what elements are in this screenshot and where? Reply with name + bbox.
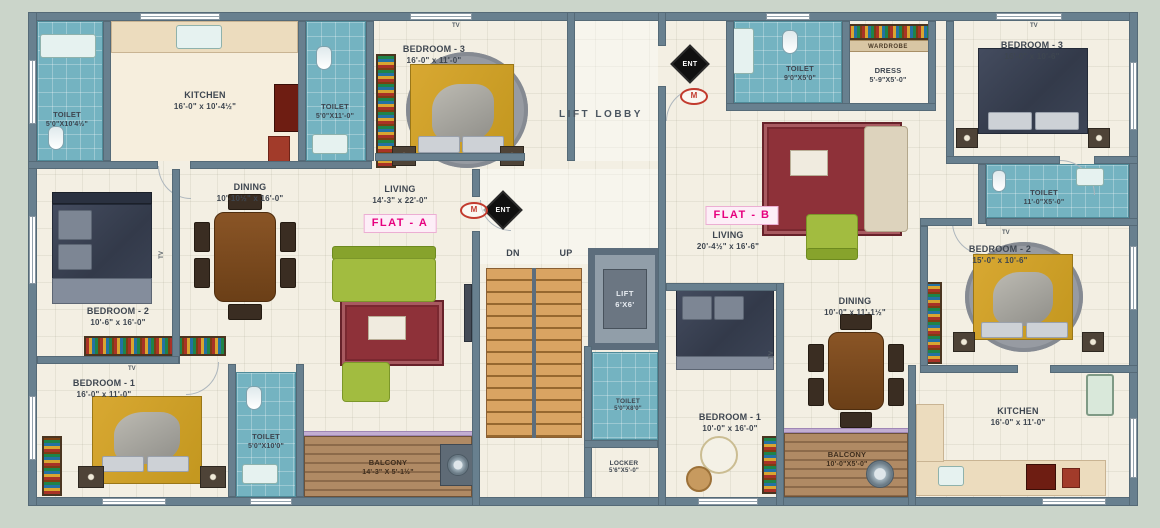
room-name: LIVING [697,230,759,242]
wall [172,169,180,364]
dining-b-chair [888,378,904,406]
wall [28,161,158,169]
wall [920,218,972,226]
dining-a-chair [228,304,262,320]
kitchen-b-mat [1062,468,1080,488]
wall [103,21,111,161]
wall [37,356,179,364]
bed2-a-sheet [52,278,152,304]
room-dims: 15'-0" x 10'-6" [969,256,1031,266]
living-a-sofa [332,258,436,302]
room-label-living-b: LIVING20'-4½" x 16'-6" [697,230,759,252]
room-label-balcony-b: BALCONY10'-0"X5'-0" [826,450,867,469]
wall [228,364,236,497]
lobby-floor-upper [575,21,658,161]
room-label-bed1-b: BEDROOM - 110'-0" x 16'-0" [699,412,761,434]
tv-label: TV [1002,230,1010,236]
room-label-dress: DRESS5'-9"X5'-0" [869,66,906,85]
room-label-bed1-a: BEDROOM - 116'-0" x 11'-0" [73,378,135,400]
dining-a-chair [280,258,296,288]
wardrobe-label-band: WARDROBE [846,40,930,52]
bed2-a-pillow [58,244,92,270]
window [1130,418,1137,478]
bed2-b-blanket [993,272,1053,326]
kitchen-b-counter-left [916,404,944,462]
toilet-a2-basin [312,134,348,154]
bed2-a-wardrobe-shelf [84,336,226,356]
balcony-a-washer-door [447,454,469,476]
room-label-bed2-a: BEDROOM - 210'-6" x 16'-0" [87,306,149,328]
room-name: DINING [217,182,284,194]
room-name: TOILET [1024,188,1065,198]
window [698,498,758,505]
wall [375,153,525,161]
room-name: BEDROOM - 2 [969,244,1031,256]
room-label-locker: LOCKER5'6"X5'-0" [609,460,639,476]
dining-a-chair [194,222,210,252]
room-label-bed2-b: BEDROOM - 215'-0" x 10'-6" [969,244,1031,266]
room-name: TOILET [248,432,284,442]
wall [908,365,916,506]
room-name: BALCONY [362,458,414,468]
toilet-b2-wc [992,170,1006,192]
room-dims: 14'-3" X 5'-1½" [362,468,414,477]
wall [946,21,954,162]
room-dims: 20'-4½" x 16'-6" [697,242,759,252]
room-dims: 14'-3" x 22'-0" [372,196,427,206]
room-name: KITCHEN [991,406,1046,418]
room-name: BEDROOM - 1 [73,378,135,390]
wall [920,226,928,373]
tv-label: TV [128,366,136,372]
room-label-toilet-a2: TOILET5'0"X11'-0" [316,102,354,121]
room-name: KITCHEN [174,90,236,102]
wall [28,497,1138,506]
room-dims: 10'-10½" x 16'-0" [217,194,284,204]
room-name: LOCKER [609,460,639,468]
lift-car: LIFT 6'X6' [603,269,647,329]
tv-label: TV [452,23,460,29]
room-dims: 5'6"X5'-0" [609,468,639,476]
wardrobe-label: WARDROBE [868,44,908,50]
flat-a-badge: FLAT - A [364,214,437,233]
stair-railing [532,268,536,438]
room-dims: 16'-0" x 11'-0" [991,418,1046,428]
dining-a-chair [194,258,210,288]
ent-label: ENT [496,207,511,214]
bed3-b-side-table [956,128,978,148]
lift-label: LIFT [616,288,634,299]
toilet-a1-wc [48,126,64,150]
room-dims: 16'-0" x 10'-6" [1001,52,1063,62]
room-label-bed3-b: BEDROOM - 316'-0" x 10'-6" [1001,40,1063,62]
bed1-a-pillow [102,456,144,472]
room-label-toilet-b2: TOILET11'-0"X5'-0" [1024,188,1065,207]
toilet-a1-basin [40,34,96,58]
window [250,498,292,505]
floor-plan: WARDROBE LIFT 6'X6' [0,0,1160,528]
wall [472,169,480,197]
wall [928,21,936,109]
main-door-marker-flat-b: M [680,88,708,105]
window [29,60,36,124]
wall [584,440,658,448]
tv-label: TV [159,251,165,259]
wall [726,21,734,109]
wall [567,12,575,161]
bed1-a-pillow [147,456,189,472]
bed3-b-side-table [1088,128,1110,148]
room-name: TOILET [316,102,354,112]
ent-label: ENT [683,61,698,68]
living-a-armchair [342,362,390,402]
room-name: BEDROOM - 3 [403,44,465,56]
room-label-balcony-a: BALCONY14'-3" X 5'-1½" [362,458,414,477]
bed2-b-side-table [1082,332,1104,352]
dining-a-chair [280,222,296,252]
wall [776,283,784,506]
toilet-b1-wc [782,30,798,54]
window [410,13,472,20]
room-name: TOILET [614,398,642,406]
toilet-b2-basin [1076,168,1104,186]
dining-b-chair [840,412,872,428]
bed3-a-blanket [432,84,494,142]
room-name: BEDROOM - 3 [1001,40,1063,52]
kitchen-b-stove [1026,464,1056,490]
bed2-a-headboard [52,192,152,204]
toilet-b1-basin [732,28,754,74]
room-name: TOILET [784,64,816,74]
room-label-kitchen-b: KITCHEN16'-0" x 11'-0" [991,406,1046,428]
balcony-b-rail [784,428,908,433]
living-a-tv-unit [464,284,472,342]
room-name: LIVING [372,184,427,196]
room-dims: 10'-0" x 16'-0" [699,424,761,434]
wall [658,86,666,506]
dining-b-chair [888,344,904,372]
dining-a-table [214,212,276,302]
wall [978,164,986,224]
toilet-a2-wc [316,46,332,70]
bed3-a-pillow [462,136,504,153]
bed3-b-pillow [988,112,1032,130]
window [29,216,36,284]
room-dims: 16'-0" x 10'-4½" [174,102,236,112]
room-name: BEDROOM - 2 [87,306,149,318]
room-dims: 16'-0" x 11'-0" [403,56,465,66]
window [29,396,36,460]
room-dims: 11'-0"X5'-0" [1024,198,1065,207]
toilet-core-floor [592,352,658,440]
bed3-a-pillow [418,136,460,153]
kitchen-b-fridge [1086,374,1114,416]
room-label-toilet-core: TOILET5'0"X8'0" [614,398,642,414]
room-dims: 10'-0"X5'-0" [826,460,867,469]
room-name: DRESS [869,66,906,76]
wall [366,21,374,161]
bed1-a-side-table [200,466,226,488]
balcony-b-washer [866,460,894,488]
room-label-bed3-a: BEDROOM - 316'-0" x 11'-0" [403,44,465,66]
stairs-up-label: UP [560,248,573,260]
room-label-dining-b: DINING10'-0" x 11'-1½" [824,296,886,318]
room-name: BALCONY [826,450,867,460]
window [1130,62,1137,130]
bed2-a-pillow [58,210,92,240]
room-label-toilet-a3: TOILET5'0"X10'0" [248,432,284,451]
wall [296,364,304,497]
room-label-toilet-a1: TOILET5'0"X10'4½" [46,110,88,129]
room-label-dining-a: DINING10'-10½" x 16'-0" [217,182,284,204]
wardrobe-shelf [846,24,930,40]
window [996,13,1062,20]
bed1-b-sheet [676,356,774,370]
kitchen-a-mat [268,136,290,162]
kitchen-b-sink [938,466,964,486]
room-dims: 10'-6" x 16'-0" [87,318,149,328]
bed1-b-pillow [682,296,712,320]
bed2-b-pillow [1026,322,1068,338]
bed1-b-pillow [714,296,744,320]
bed2-b-side-table [953,332,975,352]
window [766,13,810,20]
toilet-a3-wc [246,386,262,410]
living-a-coffee-table [368,316,406,340]
stairs-dn-label: DN [506,248,519,260]
room-dims: 9'0"X5'0" [784,74,816,83]
room-dims: 5'0"X8'0" [614,406,642,414]
bed3-b-pillow [1035,112,1079,130]
main-door-marker-flat-a: M [460,202,488,219]
living-b-armchair-back [806,248,858,260]
kitchen-a-stove [274,84,300,132]
room-dims: 5'0"X10'4½" [46,120,88,129]
wall [920,365,1018,373]
dining-b-chair [808,378,824,406]
window [102,498,166,505]
flat-b-badge: FLAT - B [705,206,778,225]
room-dims: 5'-9"X5'-0" [869,76,906,85]
room-dims: 5'0"X11'-0" [316,112,354,121]
lift-dims: 6'X6' [615,299,634,310]
living-b-coffee-table [790,150,828,176]
wall [190,161,372,169]
window [1042,498,1106,505]
wall [1050,365,1138,373]
wall [946,156,1060,164]
room-label-living-a: LIVING14'-3" x 22'-0" [372,184,427,206]
toilet-a3-basin [242,464,278,484]
balcony-a-rail [304,431,472,436]
room-label-kitchen-a: KITCHEN16'-0" x 10'-4½" [174,90,236,112]
window [140,13,220,20]
dining-b-chair [808,344,824,372]
bed1-b-basket [686,466,712,492]
room-dims: 10'-0" x 11'-1½" [824,308,886,318]
m-label: M [471,205,478,214]
wall [1094,156,1138,164]
wall [726,103,936,111]
room-name: TOILET [46,110,88,120]
room-label-toilet-b1: TOILET9'0"X5'0" [784,64,816,83]
window [1130,246,1137,310]
wall [842,21,850,109]
wall [584,346,592,498]
kitchen-a-sink [176,25,222,49]
wall [472,231,480,506]
living-b-sofa [864,126,908,232]
lift-lobby-label: LIFT LOBBY [559,108,643,121]
bed2-b-pillow [981,322,1023,338]
room-name: BEDROOM - 1 [699,412,761,424]
wall [666,283,782,291]
wall [658,12,666,46]
lift-shaft: LIFT 6'X6' [588,248,662,350]
room-dims: 16'-0" x 11'-0" [73,390,135,400]
tv-label: TV [1030,23,1038,29]
wall [298,21,306,161]
m-label: M [691,91,698,100]
bed1-a-bookshelf [42,436,62,496]
bed1-a-side-table [78,466,104,488]
room-dims: 5'0"X10'0" [248,442,284,451]
room-name: DINING [824,296,886,308]
wall [986,218,1138,226]
dining-b-table [828,332,884,410]
tv-label: TV [769,351,775,359]
